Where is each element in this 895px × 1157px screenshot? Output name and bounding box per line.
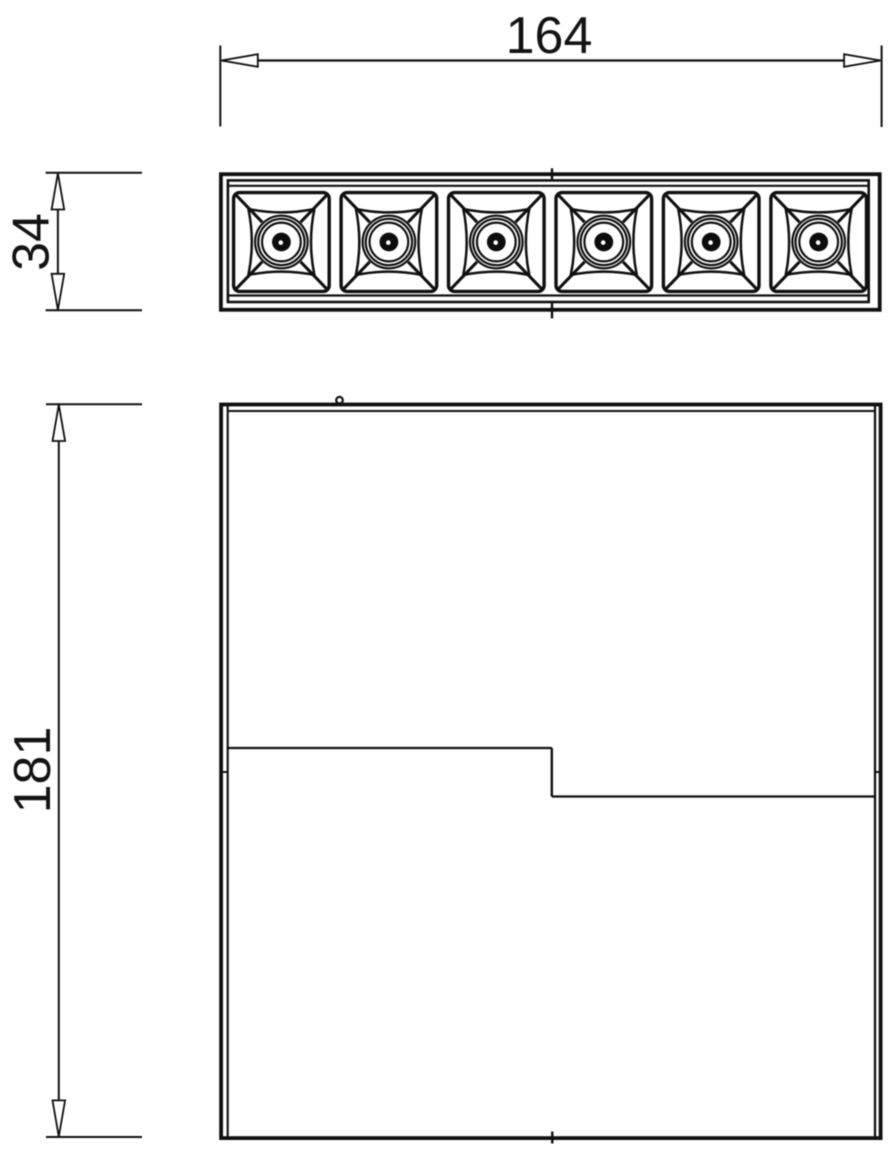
svg-text:164: 164 — [506, 7, 593, 65]
svg-text:34: 34 — [3, 213, 61, 271]
svg-text:181: 181 — [4, 727, 62, 814]
